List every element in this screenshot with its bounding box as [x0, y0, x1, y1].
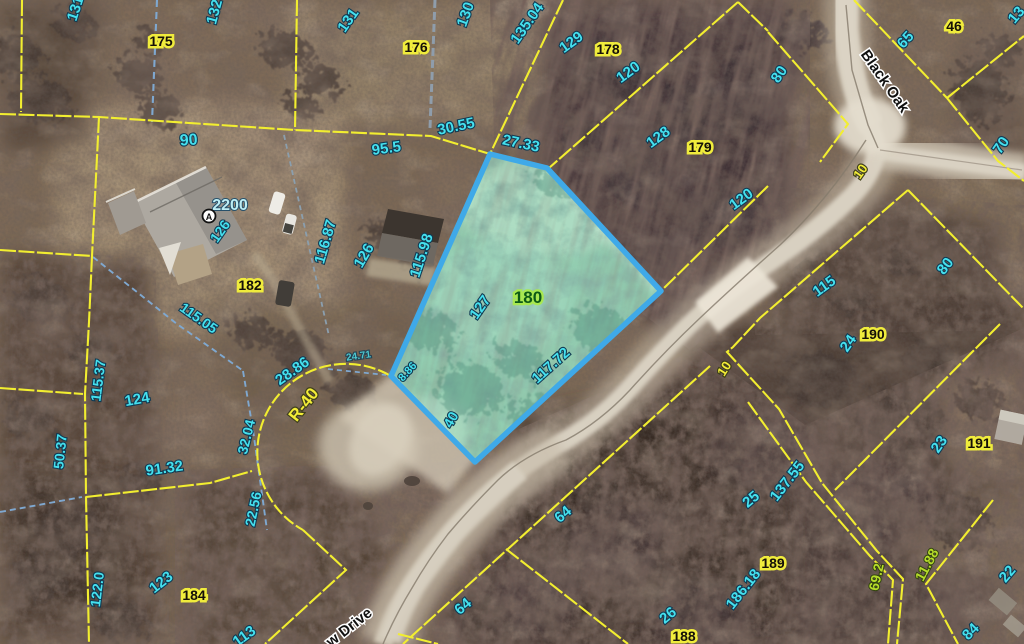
svg-text:46: 46 — [946, 18, 962, 34]
svg-text:191: 191 — [967, 435, 991, 451]
svg-text:176: 176 — [404, 39, 428, 55]
svg-text:182: 182 — [238, 277, 262, 293]
svg-text:90: 90 — [179, 131, 198, 149]
svg-text:A: A — [206, 212, 213, 222]
svg-text:184: 184 — [182, 587, 206, 603]
svg-text:178: 178 — [596, 41, 620, 57]
svg-text:190: 190 — [861, 326, 885, 342]
svg-text:2200: 2200 — [212, 197, 248, 214]
svg-text:180: 180 — [514, 288, 542, 307]
svg-text:189: 189 — [761, 555, 785, 571]
svg-text:175: 175 — [149, 33, 173, 49]
svg-text:179: 179 — [688, 139, 712, 155]
svg-text:188: 188 — [672, 628, 696, 644]
